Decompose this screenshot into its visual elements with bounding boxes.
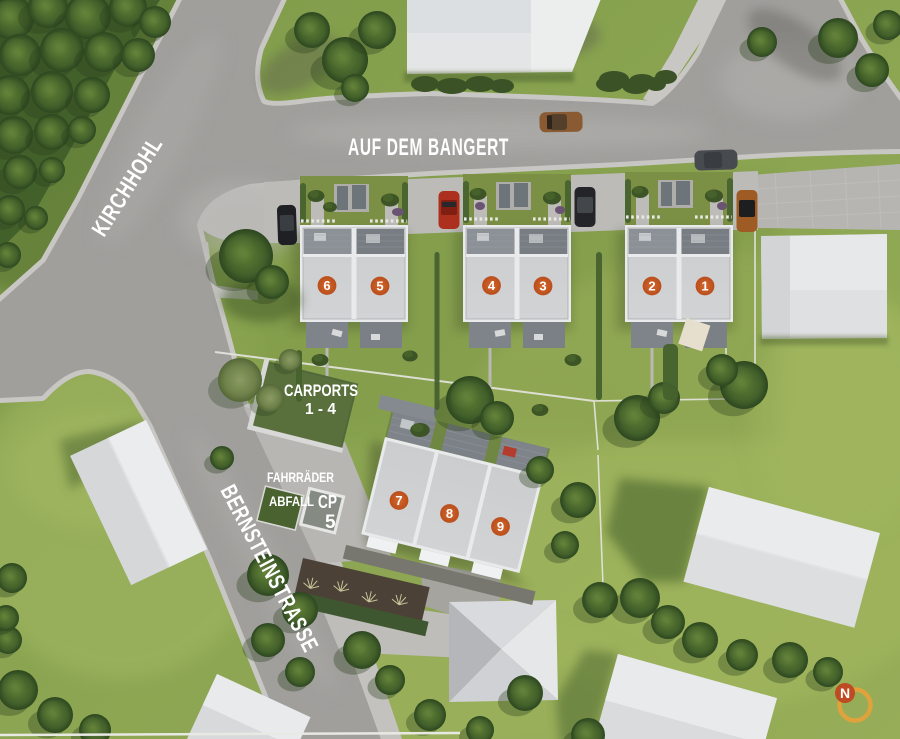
svg-text:FAHRRÄDER: FAHRRÄDER xyxy=(267,470,334,485)
svg-text:5: 5 xyxy=(376,279,383,294)
svg-text:1: 1 xyxy=(701,279,708,294)
svg-text:2: 2 xyxy=(648,279,655,294)
svg-text:6: 6 xyxy=(323,278,330,293)
svg-text:CP: CP xyxy=(318,492,337,512)
svg-text:ABFALL: ABFALL xyxy=(269,494,314,509)
svg-text:CARPORTS: CARPORTS xyxy=(284,381,358,400)
svg-text:9: 9 xyxy=(497,519,504,534)
svg-text:3: 3 xyxy=(539,279,546,294)
svg-text:7: 7 xyxy=(395,493,402,508)
svg-text:5: 5 xyxy=(325,512,336,533)
svg-text:1 - 4: 1 - 4 xyxy=(305,401,336,418)
svg-text:N: N xyxy=(840,685,850,701)
svg-text:AUF DEM BANGERT: AUF DEM BANGERT xyxy=(348,134,509,161)
svg-text:4: 4 xyxy=(488,278,496,293)
svg-text:8: 8 xyxy=(446,506,453,521)
